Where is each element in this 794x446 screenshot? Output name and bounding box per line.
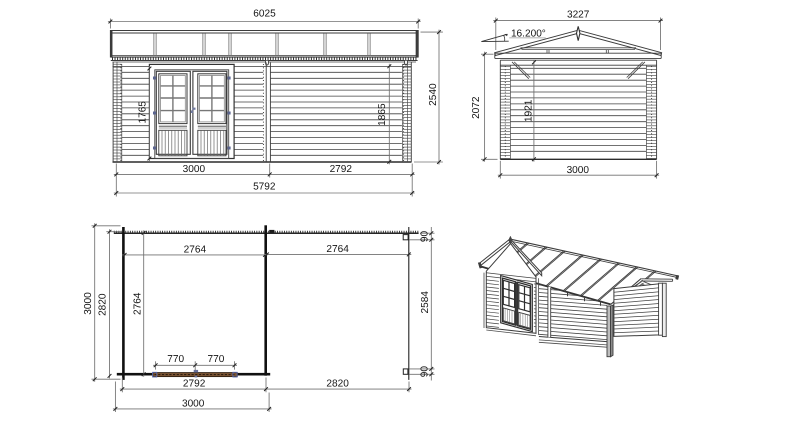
svg-text:90: 90 bbox=[420, 231, 431, 243]
svg-text:2764: 2764 bbox=[184, 245, 207, 256]
svg-text:2820: 2820 bbox=[326, 379, 349, 390]
svg-text:2764: 2764 bbox=[133, 292, 144, 315]
svg-text:770: 770 bbox=[167, 354, 184, 365]
svg-text:1865: 1865 bbox=[377, 103, 388, 126]
svg-text:6025: 6025 bbox=[253, 9, 276, 20]
svg-text:3227: 3227 bbox=[567, 9, 590, 20]
svg-text:2820: 2820 bbox=[98, 293, 109, 316]
svg-text:3000: 3000 bbox=[183, 164, 206, 175]
svg-text:2792: 2792 bbox=[330, 164, 353, 175]
svg-text:770: 770 bbox=[207, 354, 224, 365]
svg-text:90: 90 bbox=[420, 366, 431, 378]
svg-text:2072: 2072 bbox=[471, 96, 482, 119]
svg-text:2584: 2584 bbox=[420, 291, 431, 314]
svg-text:2792: 2792 bbox=[183, 379, 206, 390]
svg-text:5792: 5792 bbox=[253, 181, 276, 192]
svg-text:3000: 3000 bbox=[567, 165, 590, 176]
svg-text:2764: 2764 bbox=[326, 244, 349, 255]
svg-text:1765: 1765 bbox=[137, 101, 148, 124]
svg-text:3000: 3000 bbox=[83, 292, 94, 315]
svg-text:3000: 3000 bbox=[182, 399, 205, 410]
svg-text:1921: 1921 bbox=[523, 99, 534, 122]
svg-text:2540: 2540 bbox=[428, 83, 439, 106]
